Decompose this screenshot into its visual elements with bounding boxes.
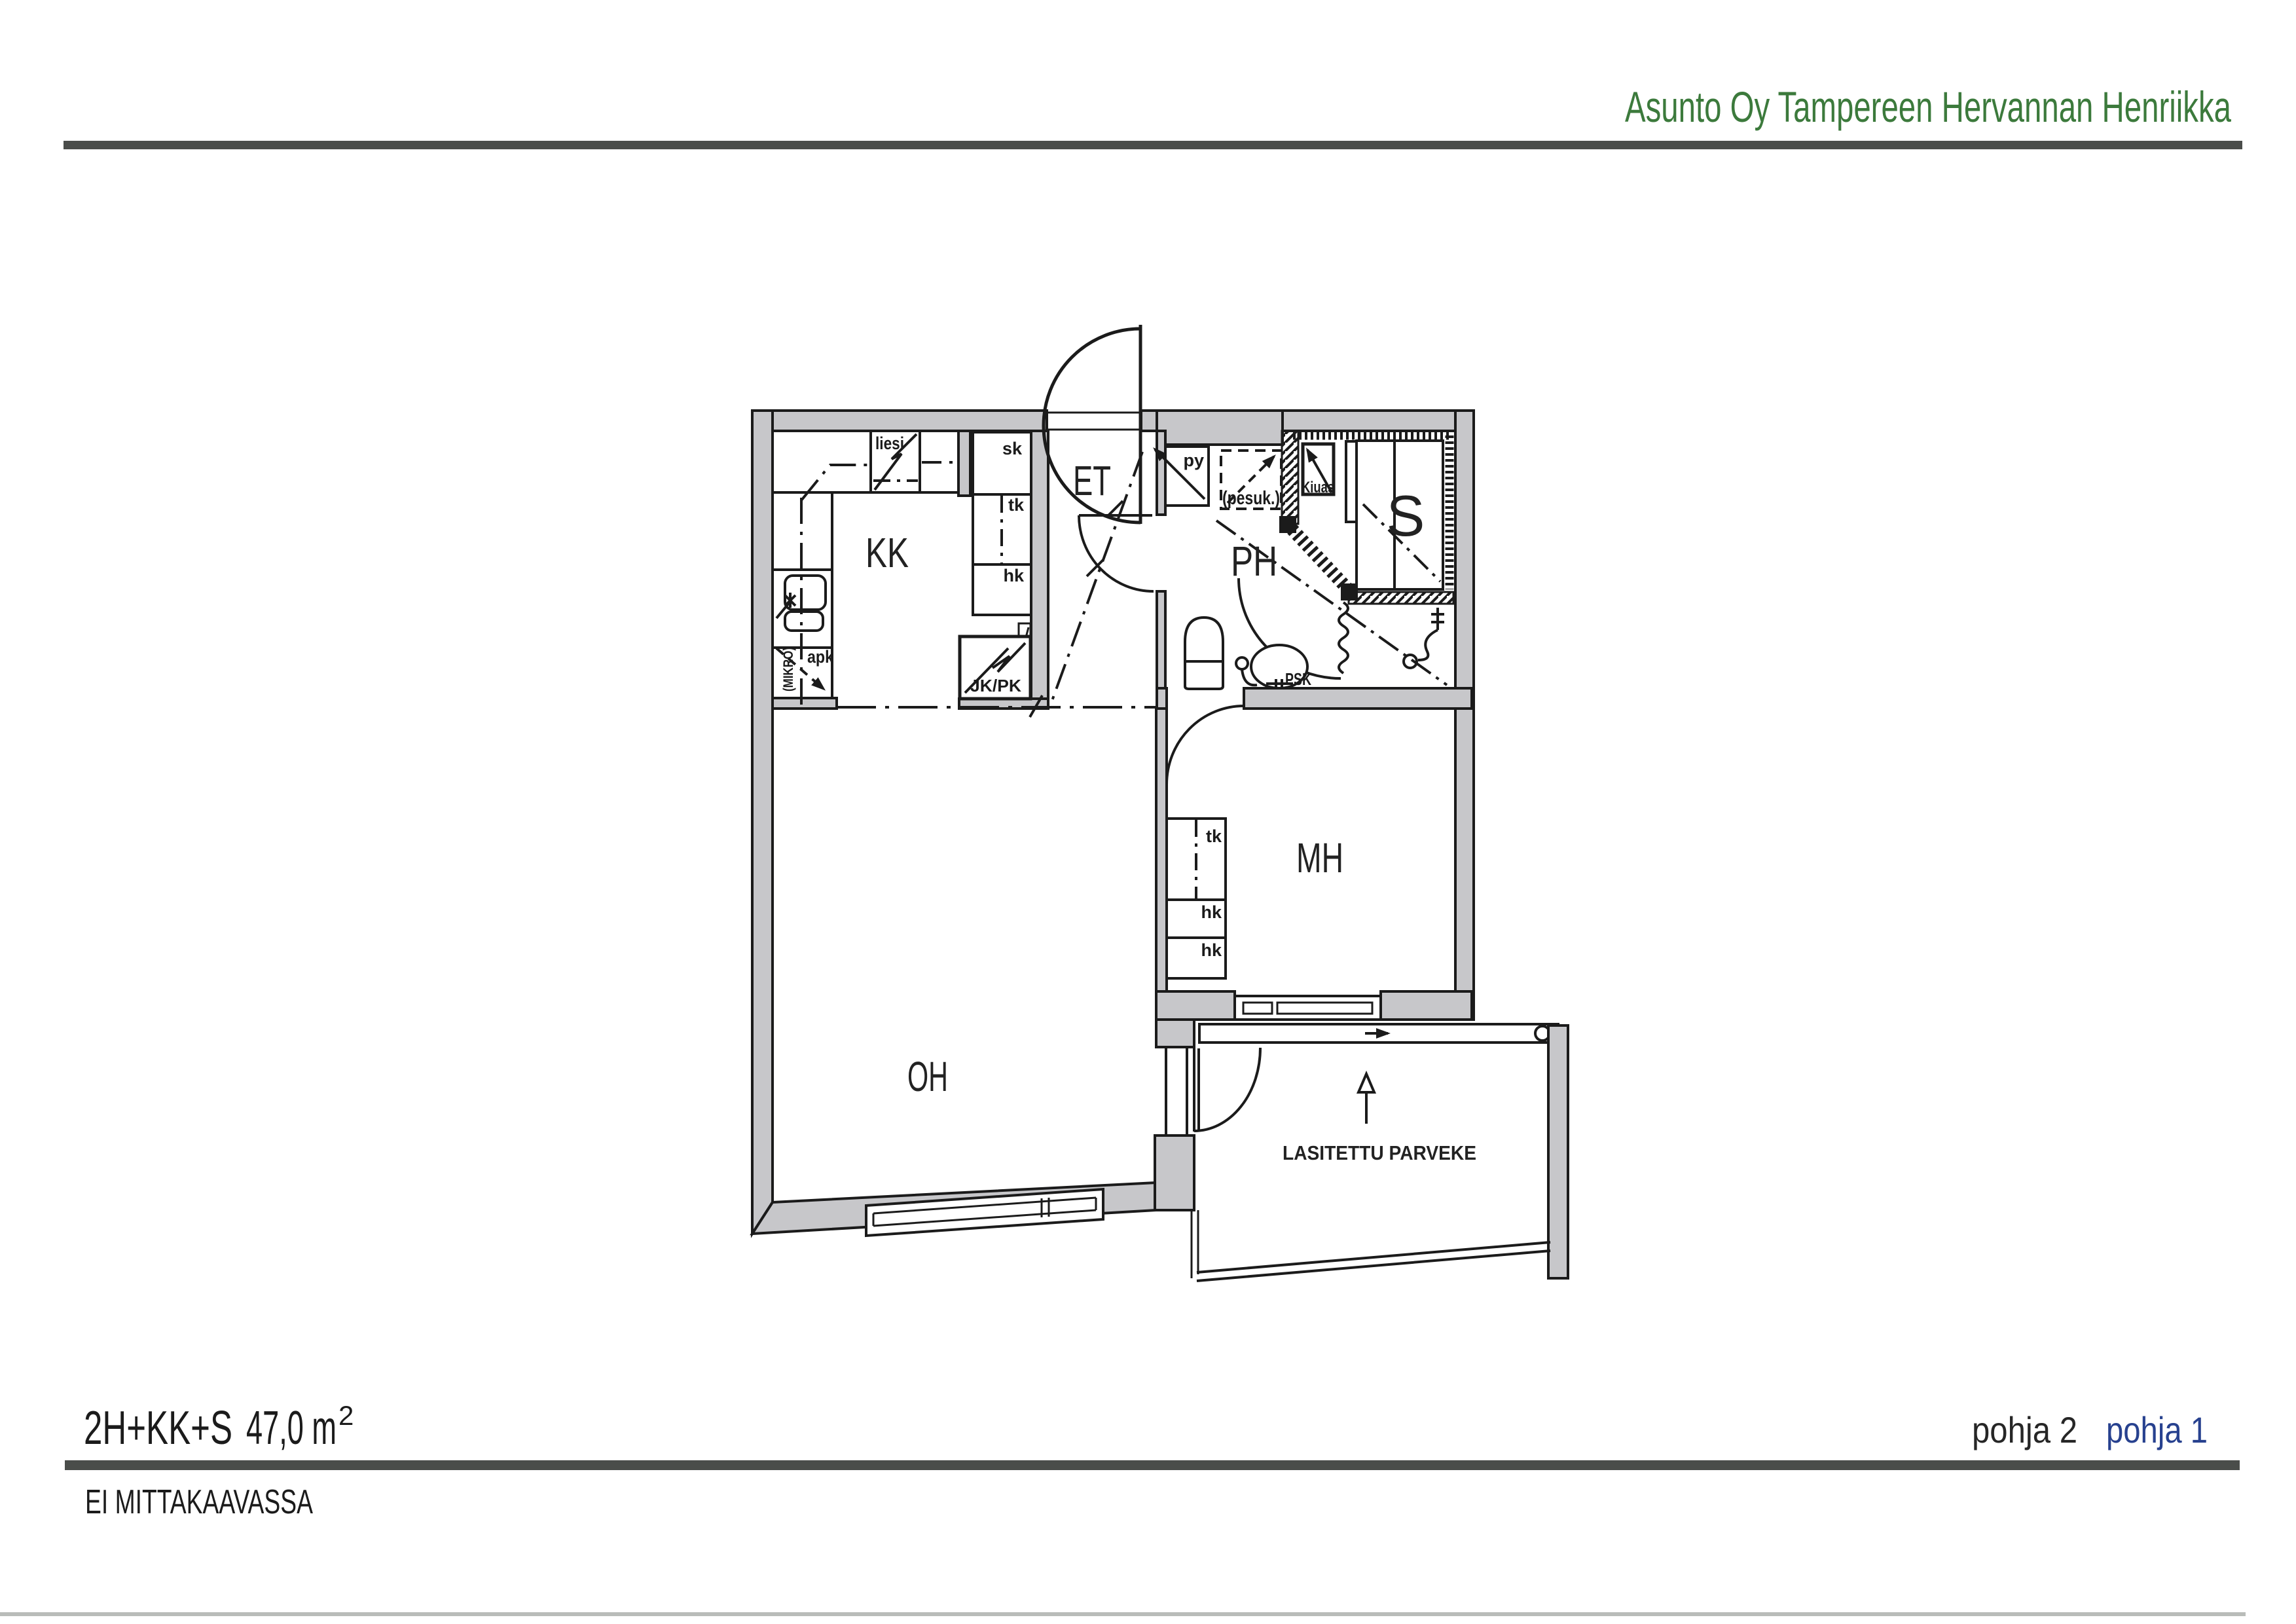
svg-text:PH: PH xyxy=(1231,538,1277,585)
svg-text:(MIKRO): (MIKRO) xyxy=(781,647,796,692)
svg-text:EI MITTAKAAVASSA: EI MITTAKAAVASSA xyxy=(85,1483,313,1521)
svg-text:Kiuas: Kiuas xyxy=(1302,479,1334,496)
svg-text:OH: OH xyxy=(907,1053,948,1100)
svg-text:hk: hk xyxy=(1003,566,1024,585)
svg-text:pohja 2: pohja 2 xyxy=(1972,1409,2077,1450)
svg-text:tk: tk xyxy=(1206,826,1222,846)
svg-text:apk: apk xyxy=(807,647,834,667)
svg-text:liesi: liesi xyxy=(875,434,904,453)
svg-text:py: py xyxy=(1183,451,1204,470)
svg-text:pohja 1: pohja 1 xyxy=(2106,1409,2208,1450)
svg-text:47,0 m: 47,0 m xyxy=(246,1402,337,1454)
svg-text:LASITETTU PARVEKE: LASITETTU PARVEKE xyxy=(1283,1141,1476,1164)
svg-text:hk: hk xyxy=(1201,940,1222,960)
svg-text:KK: KK xyxy=(866,529,909,576)
svg-text:hk: hk xyxy=(1201,902,1222,922)
svg-text:tk: tk xyxy=(1008,495,1025,515)
svg-text:2: 2 xyxy=(338,1400,354,1431)
svg-text:ET: ET xyxy=(1073,457,1111,504)
svg-text:MH: MH xyxy=(1296,834,1343,881)
svg-text:(pesuk.): (pesuk.) xyxy=(1222,488,1280,509)
svg-text:PSK: PSK xyxy=(1285,669,1311,689)
svg-text:JK/PK: JK/PK xyxy=(970,676,1021,695)
svg-text:2H+KK+S: 2H+KK+S xyxy=(84,1402,232,1454)
svg-text:Asunto Oy Tampereen Hervannan: Asunto Oy Tampereen Hervannan Henriikka xyxy=(1625,83,2231,131)
svg-text:S: S xyxy=(1387,483,1425,548)
svg-text:sk: sk xyxy=(1002,439,1023,458)
